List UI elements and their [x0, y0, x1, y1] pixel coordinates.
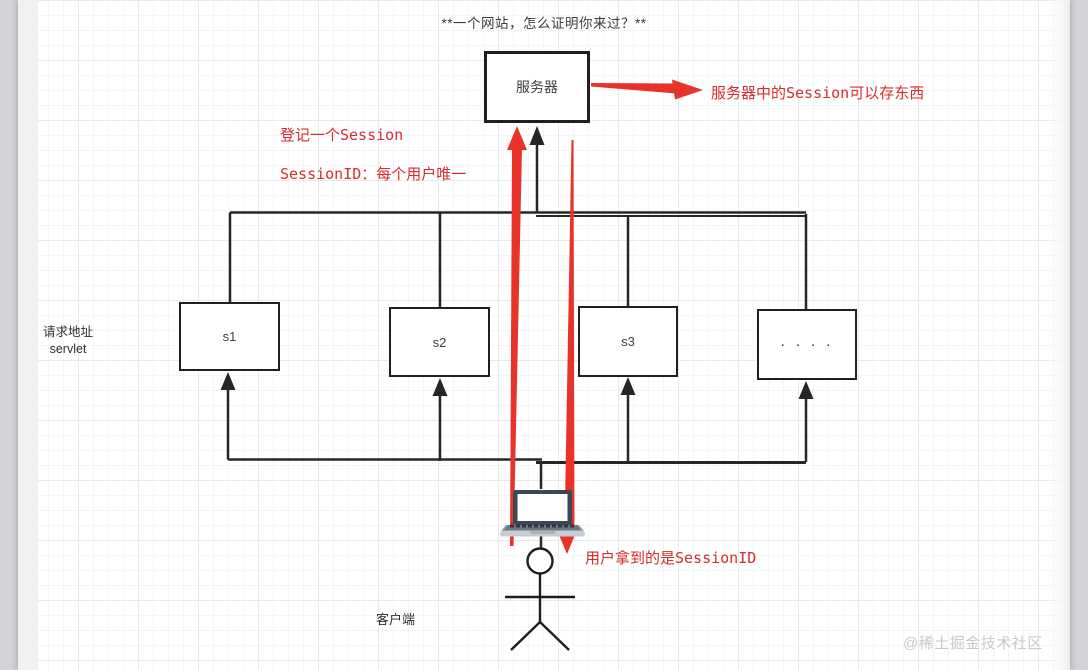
request-address-label: 请求地址 servlet [30, 324, 106, 358]
watermark: @稀土掘金技术社区 [903, 632, 1043, 653]
client-label: 客户端 [376, 609, 415, 628]
servlet-node-s1-label: s1 [223, 329, 237, 344]
whiteboard-page: { "title": "**一个网站，怎么证明你来过？**", "nodes":… [0, 0, 1088, 670]
annotation-sessionid-unique: SessionID：每个用户唯一 [280, 163, 466, 184]
servlet-node-s3: s3 [578, 306, 678, 377]
request-address-line2: servlet [30, 341, 106, 358]
servlet-node-more-label: · · · · [780, 336, 833, 353]
servlet-node-more: · · · · [757, 309, 857, 380]
annotation-user-gets-sessionid: 用户拿到的是SessionID [585, 547, 756, 568]
annotation-session-store: 服务器中的Session可以存东西 [711, 82, 924, 103]
canvas-right-fade [1048, 0, 1070, 670]
servlet-node-s1: s1 [179, 302, 280, 371]
server-node-label: 服务器 [516, 77, 558, 97]
servlet-node-s2: s2 [389, 307, 490, 377]
servlet-node-s2-label: s2 [433, 335, 447, 350]
annotation-register-session: 登记一个Session [280, 124, 403, 145]
server-node: 服务器 [484, 51, 590, 123]
page-title: **一个网站，怎么证明你来过？** [0, 12, 1088, 32]
servlet-node-s3-label: s3 [621, 334, 635, 349]
request-address-line1: 请求地址 [30, 324, 106, 341]
